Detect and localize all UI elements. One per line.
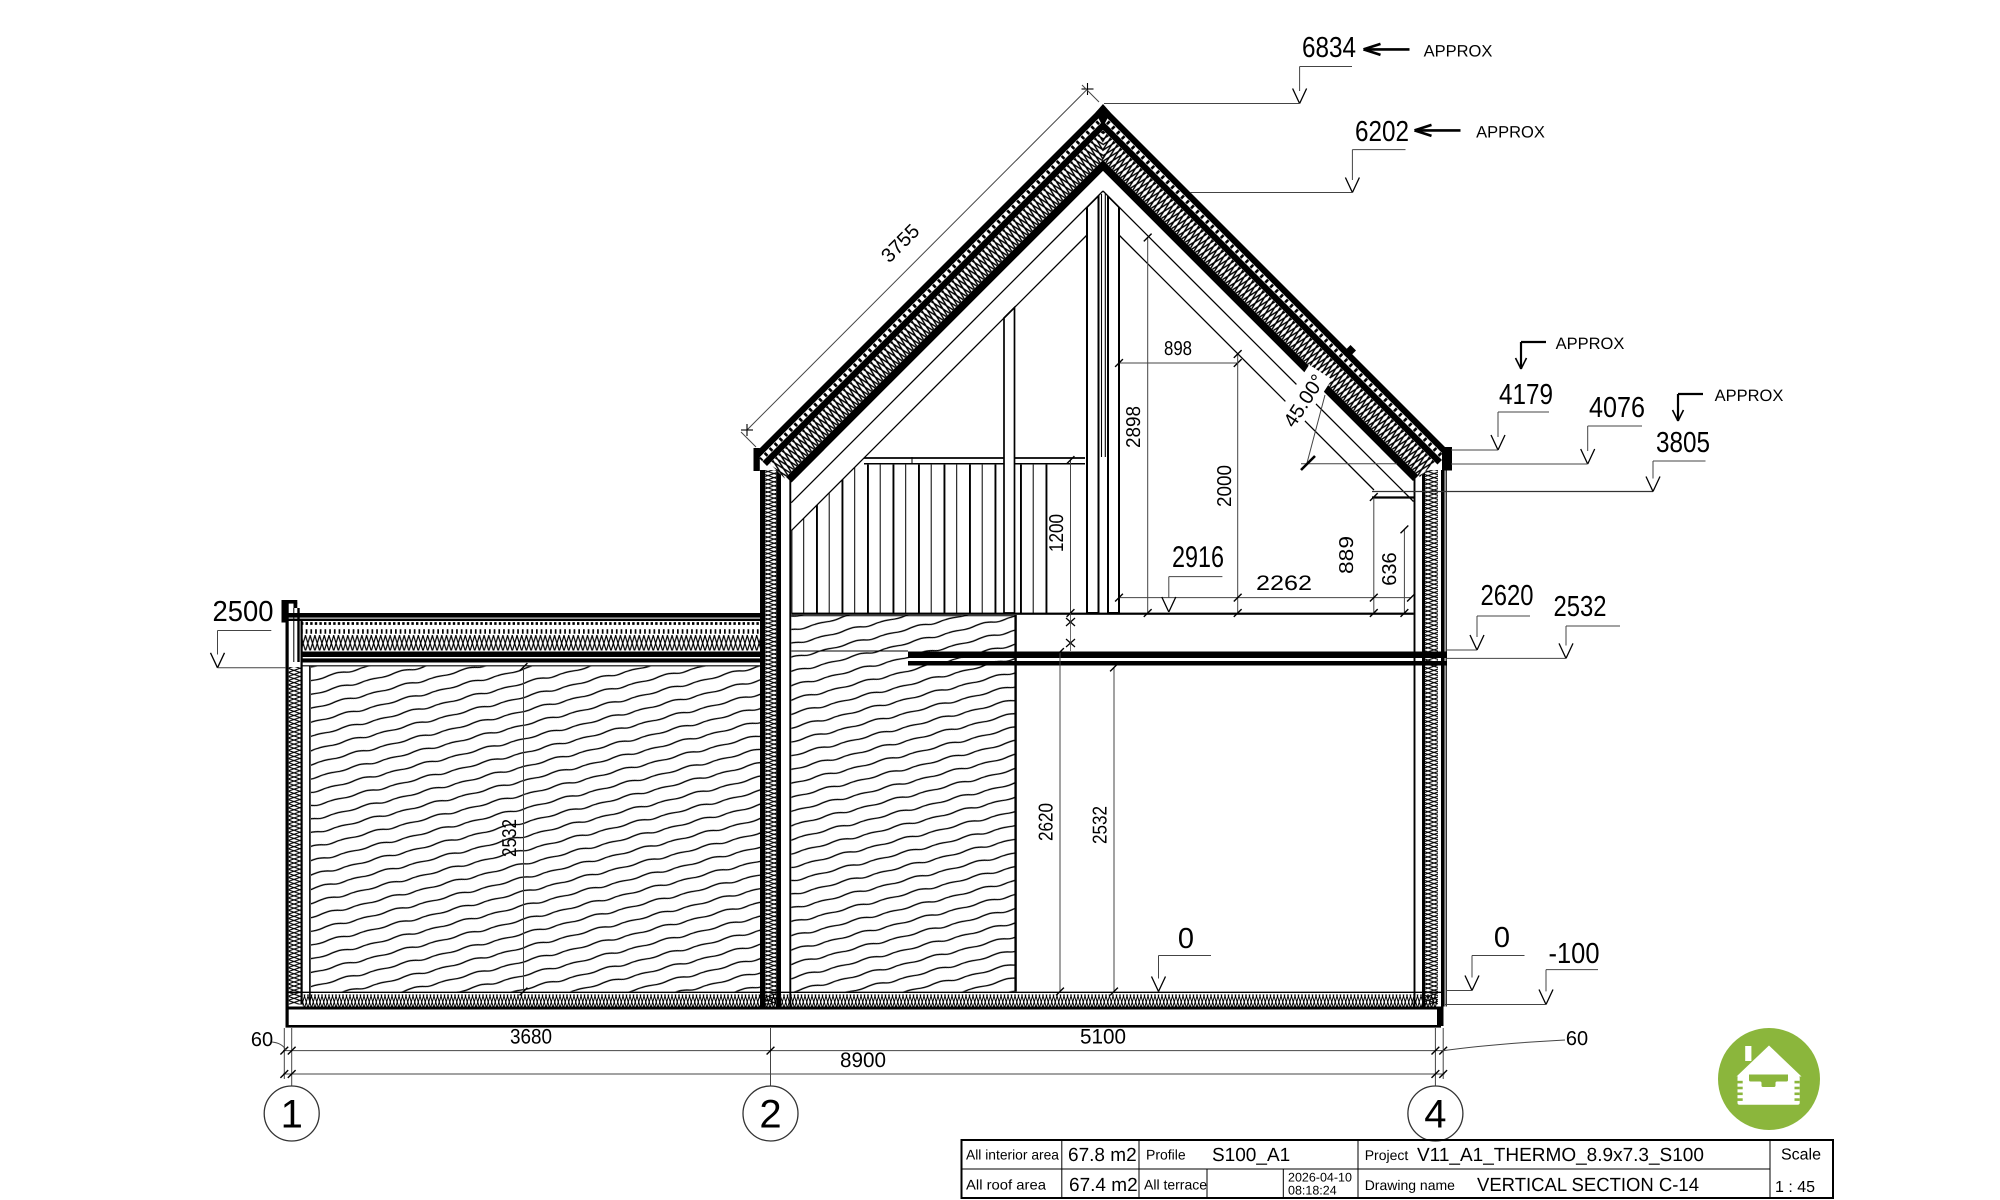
svg-text:2620: 2620 xyxy=(1481,580,1534,612)
svg-text:2532: 2532 xyxy=(1090,806,1112,844)
svg-text:VERTICAL SECTION C-14: VERTICAL SECTION C-14 xyxy=(1477,1175,1699,1196)
svg-text:-100: -100 xyxy=(1549,938,1600,970)
svg-text:67.4 m2: 67.4 m2 xyxy=(1069,1175,1138,1196)
svg-text:APPROX: APPROX xyxy=(1715,387,1784,405)
svg-text:All terrace: All terrace xyxy=(1144,1177,1207,1193)
svg-text:0: 0 xyxy=(1178,923,1194,955)
svg-text:V11_A1_THERMO_8.9x7.3_S100: V11_A1_THERMO_8.9x7.3_S100 xyxy=(1417,1145,1704,1166)
svg-text:All roof area: All roof area xyxy=(966,1177,1046,1193)
svg-text:3680: 3680 xyxy=(510,1026,552,1049)
svg-text:4: 4 xyxy=(1424,1093,1446,1137)
svg-text:1: 1 xyxy=(281,1093,303,1137)
svg-text:2620: 2620 xyxy=(1036,803,1058,841)
svg-text:Drawing name: Drawing name xyxy=(1365,1177,1455,1193)
svg-text:898: 898 xyxy=(1164,338,1192,360)
svg-text:60: 60 xyxy=(1566,1028,1588,1050)
svg-text:APPROX: APPROX xyxy=(1424,43,1493,61)
svg-text:3805: 3805 xyxy=(1656,427,1710,459)
svg-text:2916: 2916 xyxy=(1172,541,1224,574)
svg-text:4076: 4076 xyxy=(1589,392,1645,424)
svg-text:67.8 m2: 67.8 m2 xyxy=(1068,1145,1137,1166)
svg-text:S100_A1: S100_A1 xyxy=(1212,1145,1290,1166)
svg-text:889: 889 xyxy=(1336,536,1358,574)
svg-text:2532: 2532 xyxy=(499,819,521,857)
svg-text:APPROX: APPROX xyxy=(1556,335,1625,353)
svg-text:2532: 2532 xyxy=(1554,591,1607,623)
svg-text:1 : 45: 1 : 45 xyxy=(1775,1179,1815,1196)
svg-text:4179: 4179 xyxy=(1499,379,1553,411)
svg-text:APPROX: APPROX xyxy=(1476,124,1545,142)
svg-text:2898: 2898 xyxy=(1123,406,1145,448)
svg-text:0: 0 xyxy=(1494,922,1510,954)
svg-text:60: 60 xyxy=(251,1029,273,1051)
svg-text:6202: 6202 xyxy=(1355,116,1409,148)
svg-text:2500: 2500 xyxy=(213,596,274,628)
svg-text:1200: 1200 xyxy=(1046,514,1068,552)
svg-text:2262: 2262 xyxy=(1256,572,1312,595)
svg-text:08:18:24: 08:18:24 xyxy=(1288,1184,1337,1198)
svg-text:All interior area: All interior area xyxy=(966,1147,1059,1163)
svg-text:6834: 6834 xyxy=(1302,32,1356,64)
svg-text:636: 636 xyxy=(1379,552,1401,585)
svg-text:5100: 5100 xyxy=(1080,1026,1126,1049)
svg-text:Profile: Profile xyxy=(1146,1147,1186,1163)
svg-text:2: 2 xyxy=(759,1093,781,1137)
svg-text:2000: 2000 xyxy=(1214,465,1236,507)
svg-text:Scale: Scale xyxy=(1781,1147,1821,1164)
svg-text:8900: 8900 xyxy=(840,1049,886,1072)
svg-text:Project: Project xyxy=(1365,1147,1409,1163)
svg-text:2026-04-10: 2026-04-10 xyxy=(1288,1171,1352,1185)
